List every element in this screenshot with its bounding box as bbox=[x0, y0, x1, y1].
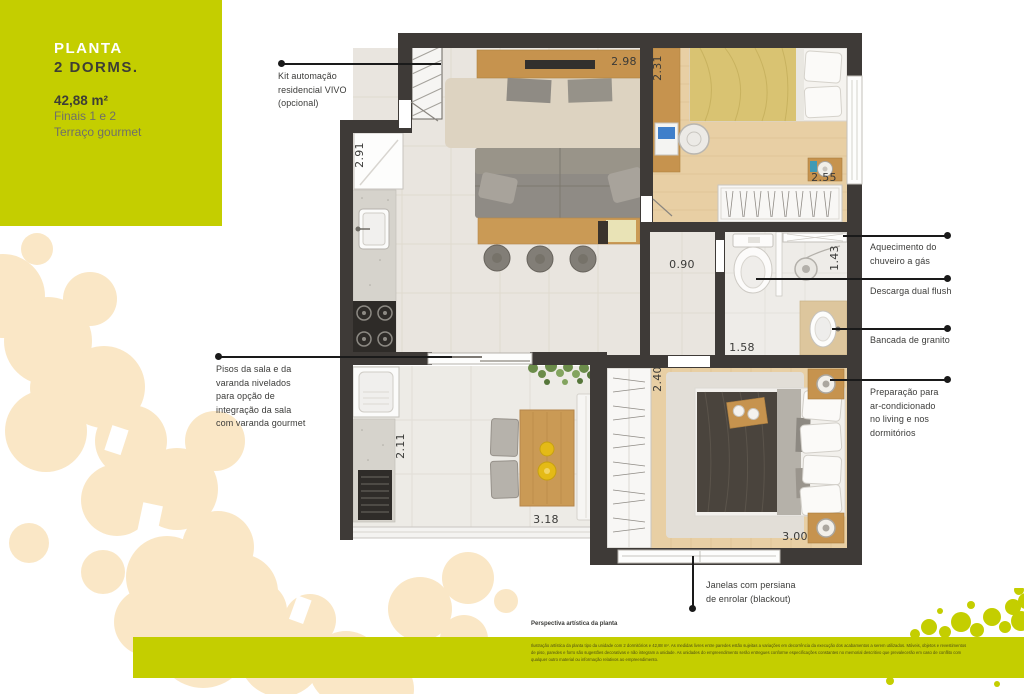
sofa bbox=[475, 148, 647, 218]
dim-hall-width: 0.90 bbox=[669, 258, 695, 271]
leader-line bbox=[843, 235, 948, 237]
grill bbox=[358, 470, 392, 520]
entry-shaft bbox=[412, 46, 442, 119]
dim-kitchen-depth: 2.91 bbox=[353, 142, 366, 168]
callout-label: Janelas com persiana de enrolar (blackou… bbox=[706, 579, 846, 606]
bedroom1-window bbox=[847, 76, 862, 184]
railing bbox=[348, 527, 598, 538]
pillow bbox=[802, 455, 841, 485]
leader-line bbox=[281, 63, 441, 65]
plate bbox=[540, 442, 554, 456]
breakfast-tray bbox=[727, 397, 768, 428]
leader-line bbox=[692, 556, 694, 609]
pillow bbox=[800, 484, 842, 515]
callout-label: Preparação para ar-condicionado no livin… bbox=[870, 386, 980, 440]
bathroom-door bbox=[716, 240, 724, 272]
leader-dot bbox=[689, 605, 696, 612]
bedroom2-furniture bbox=[607, 368, 845, 548]
pillow bbox=[800, 423, 842, 454]
toilet bbox=[733, 234, 773, 293]
wardrobe2 bbox=[607, 368, 651, 548]
sliding-door bbox=[428, 353, 532, 364]
callout-label: Kit automação residencial VIVO (opcional… bbox=[278, 70, 388, 111]
dim-shower-depth: 1.43 bbox=[828, 245, 841, 271]
leader-dot bbox=[215, 353, 222, 360]
disclaimer-text: Ilustração artística da planta tipo da u… bbox=[531, 642, 1017, 663]
dim-living-width: 2.98 bbox=[611, 55, 637, 68]
tv bbox=[525, 60, 595, 69]
bed2 bbox=[695, 388, 845, 516]
kitchen-sink bbox=[356, 209, 390, 249]
bedroom2-window bbox=[618, 550, 780, 563]
dining-table bbox=[520, 410, 574, 506]
entry-door bbox=[399, 100, 411, 128]
stove bbox=[353, 301, 396, 352]
dim-varanda-width: 3.18 bbox=[533, 513, 559, 526]
leader-dot bbox=[944, 325, 951, 332]
chair bbox=[490, 461, 518, 499]
chair bbox=[490, 419, 518, 457]
leader-line bbox=[756, 278, 948, 280]
dim-dorm1-width: 2.31 bbox=[651, 55, 664, 81]
plan-area: 42,88 m² bbox=[54, 92, 222, 110]
leader-dot bbox=[278, 60, 285, 67]
floor-cushion bbox=[506, 78, 551, 103]
dim-dorm2-width: 3.00 bbox=[782, 530, 808, 543]
plan-title-line2: 2 DORMS. bbox=[54, 59, 222, 78]
dim-dorm2-depth: 2.40 bbox=[651, 366, 664, 392]
bedroom1-door bbox=[641, 196, 652, 222]
desk-chair bbox=[679, 124, 709, 154]
pillow bbox=[804, 51, 842, 83]
leader-line bbox=[832, 328, 948, 330]
leader-line bbox=[830, 379, 948, 381]
dim-dorm1-wardrobe: 2.55 bbox=[811, 171, 837, 184]
laundry-tank bbox=[353, 367, 399, 417]
bed1 bbox=[690, 48, 847, 121]
leader-dot bbox=[944, 275, 951, 282]
bedroom2-door bbox=[668, 356, 710, 367]
leader-dot bbox=[944, 376, 951, 383]
leader-dot bbox=[944, 232, 951, 239]
plan-title-line1: PLANTA bbox=[54, 40, 222, 59]
bed2-nightstand-top bbox=[808, 369, 844, 399]
callout-label: Descarga dual flush bbox=[870, 285, 1000, 299]
dim-bath-width: 1.58 bbox=[729, 341, 755, 354]
plan-subtitle-line1: Finais 1 e 2 bbox=[54, 109, 222, 125]
bed2-nightstand-bottom bbox=[808, 513, 844, 543]
page: 2.98 2.31 2.91 2.55 0.90 1.43 1.58 2.40 … bbox=[0, 0, 1024, 694]
callout-label: Aquecimento do chuveiro a gás bbox=[870, 241, 980, 268]
wardrobe1 bbox=[718, 185, 842, 222]
plan-subtitle-line2: Terraço gourmet bbox=[54, 125, 222, 141]
callout-label: Pisos da sala e da varanda nivelados par… bbox=[216, 363, 346, 431]
callout-label: Bancada de granito bbox=[870, 334, 1000, 348]
perspective-caption: Perspectiva artística da planta bbox=[531, 621, 617, 627]
title-block: PLANTA 2 DORMS. 42,88 m² Finais 1 e 2 Te… bbox=[0, 0, 222, 226]
pillow bbox=[804, 86, 842, 118]
dim-varanda-depth: 2.11 bbox=[394, 433, 407, 459]
leader-line bbox=[219, 356, 452, 358]
floor-cushion bbox=[568, 78, 613, 103]
